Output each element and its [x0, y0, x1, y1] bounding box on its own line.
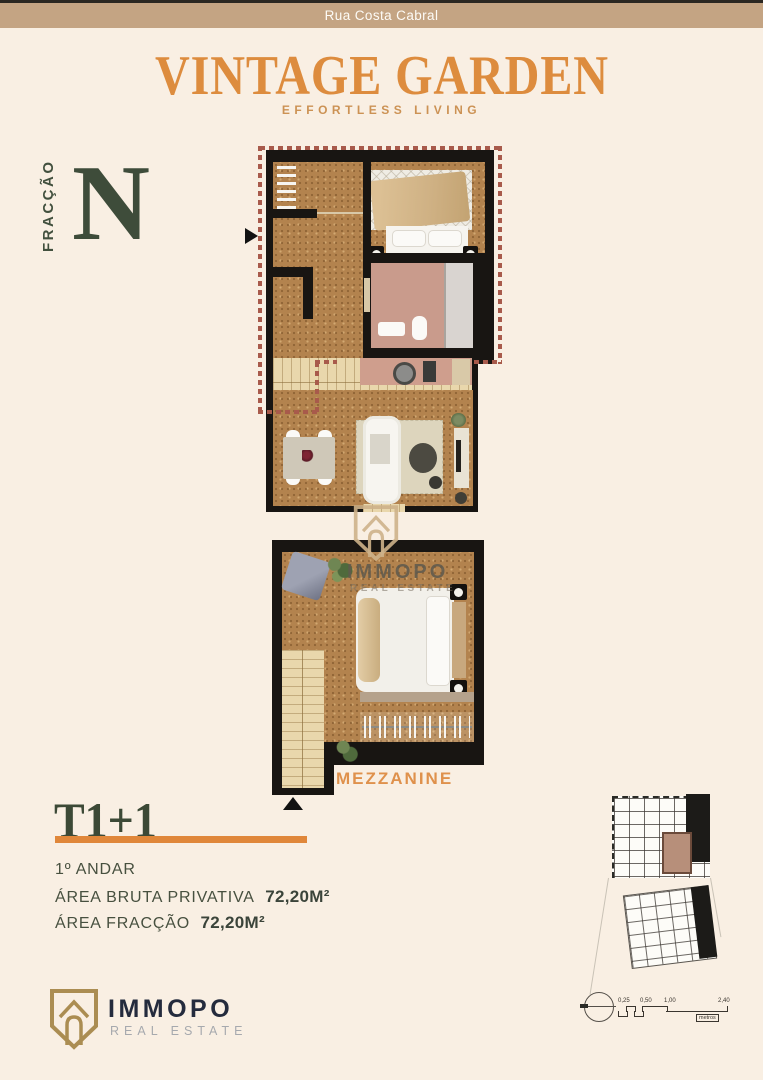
- hanger-rack: [364, 716, 470, 738]
- scale-tick: [727, 1006, 728, 1012]
- project-title: VINTAGE GARDEN: [0, 48, 763, 104]
- wall: [303, 267, 313, 319]
- wall: [266, 267, 303, 277]
- up-arrow-icon: [283, 797, 303, 810]
- fraction-boundary: [474, 360, 502, 364]
- footer-brand: IMMOPO: [108, 995, 233, 1024]
- area-fraction-line: ÁREA FRACÇÃO 72,20M²: [55, 913, 265, 933]
- bed-pillow: [428, 230, 462, 247]
- north-arrow-tip: [580, 1004, 588, 1008]
- site-key-plan: 0,25 0,50 1,00 2,40 metros: [582, 786, 763, 1038]
- scale-bar: 0,25 0,50 1,00 2,40 metros: [618, 998, 732, 1020]
- mezzanine-label: MEZZANINE: [336, 769, 453, 789]
- entry-wardrobe: [277, 166, 296, 212]
- area-private-value: 72,20M²: [265, 887, 329, 906]
- coffee-table: [409, 443, 437, 473]
- table-flowers: [302, 450, 315, 463]
- area-fraction-value: 72,20M²: [200, 913, 264, 932]
- street-bar: Rua Costa Cabral: [0, 3, 763, 28]
- sofa-cushion: [370, 434, 390, 464]
- door-swing: [317, 212, 368, 214]
- fraction-boundary: [315, 360, 337, 364]
- fraction-boundary: [498, 146, 502, 364]
- floorplan-first-floor: [266, 150, 494, 512]
- side-table: [429, 476, 442, 489]
- bed-blanket-roll: [358, 598, 380, 682]
- door-swing: [364, 278, 370, 312]
- bed-headboard: [452, 602, 466, 678]
- bed-pillows: [426, 596, 450, 686]
- fraction-letter: N: [72, 150, 150, 258]
- plant: [332, 736, 360, 764]
- street-name: Rua Costa Cabral: [325, 8, 439, 23]
- bed-blanket: [370, 171, 471, 231]
- cooktop: [423, 361, 436, 382]
- wall: [368, 253, 494, 263]
- project-subtitle: EFFORTLESS LIVING: [0, 103, 763, 117]
- north-arrow-icon: [584, 992, 614, 1022]
- area-private-line: ÁREA BRUTA PRIVATIVA 72,20M²: [55, 887, 330, 907]
- stair-divider: [302, 650, 303, 788]
- scale-step: [642, 1006, 668, 1012]
- bed-pillow: [392, 230, 426, 247]
- fraction-label: FRACÇÃO: [40, 168, 58, 252]
- stairs-mezzanine: [282, 650, 324, 788]
- site-highlight-unit: [662, 832, 692, 874]
- fraction-boundary: [258, 410, 318, 414]
- flyer-page: Rua Costa Cabral VINTAGE GARDEN EFFORTLE…: [0, 0, 763, 1080]
- fraction-boundary: [315, 362, 319, 414]
- wall: [363, 348, 494, 358]
- scale-line: [666, 1011, 728, 1012]
- plant: [451, 413, 466, 427]
- watermark-tagline: REAL ESTATE: [350, 583, 456, 594]
- bathroom-sink: [378, 322, 405, 336]
- area-fraction-label: ÁREA FRACÇÃO: [55, 915, 190, 932]
- toilet: [412, 316, 427, 340]
- kitchen-cabinet: [452, 359, 470, 385]
- immopo-watermark-icon: [352, 502, 400, 564]
- fraction-boundary: [260, 146, 502, 150]
- desk-shelf: [360, 692, 474, 702]
- watermark-brand: IMMOPO: [347, 561, 448, 584]
- shower: [444, 263, 473, 348]
- site-boundary-line: [590, 878, 609, 995]
- fraction-boundary: [258, 146, 262, 414]
- footer-tagline: REAL ESTATE: [110, 1024, 247, 1038]
- accent-rule: [55, 836, 307, 843]
- kitchen-sink: [393, 362, 416, 385]
- wall: [273, 209, 317, 218]
- tv: [456, 440, 461, 472]
- area-private-label: ÁREA BRUTA PRIVATIVA: [55, 889, 255, 906]
- facade-notch: [478, 364, 494, 512]
- immopo-logo-icon: [48, 988, 100, 1050]
- wall: [363, 162, 371, 364]
- pouf: [455, 492, 467, 504]
- entrance-arrow-icon: [245, 228, 258, 244]
- floor-line: 1º ANDAR: [55, 861, 136, 879]
